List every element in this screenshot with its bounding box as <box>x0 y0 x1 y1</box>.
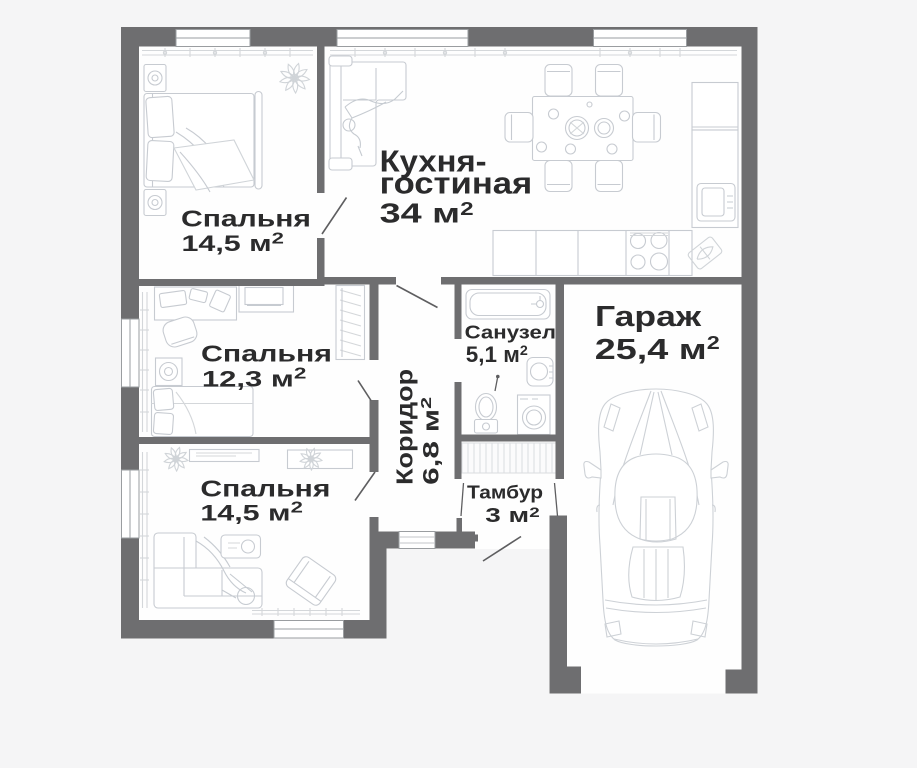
svg-text:гостиная: гостиная <box>380 165 533 200</box>
svg-text:Тамбур: Тамбур <box>467 482 543 502</box>
svg-text:Спальня: Спальня <box>201 341 332 367</box>
svg-text:Коридор: Коридор <box>391 369 417 485</box>
svg-text:Гараж: Гараж <box>595 301 702 333</box>
svg-text:Спальня: Спальня <box>181 206 311 232</box>
svg-text:6,8 м2: 6,8 м2 <box>418 397 444 485</box>
svg-text:14,5 м2: 14,5 м2 <box>182 230 285 256</box>
svg-text:12,3 м2: 12,3 м2 <box>202 366 307 392</box>
svg-text:Спальня: Спальня <box>200 475 330 501</box>
svg-text:Санузел: Санузел <box>465 323 556 343</box>
svg-text:5,1 м2: 5,1 м2 <box>466 342 528 367</box>
svg-text:14,5 м2: 14,5 м2 <box>200 500 303 526</box>
svg-text:25,4 м2: 25,4 м2 <box>595 333 720 366</box>
svg-text:34 м2: 34 м2 <box>380 198 474 229</box>
